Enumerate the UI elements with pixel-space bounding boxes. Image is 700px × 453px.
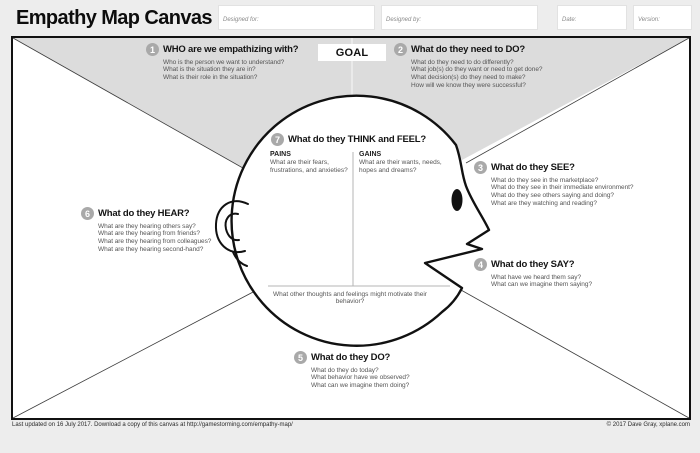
section-hear: 6 What do they HEAR? What are they heari… (81, 207, 211, 254)
section-title: What do they SEE? (491, 162, 575, 173)
question-line: What are they hearing from friends? (98, 230, 211, 238)
date-label: Date: (562, 17, 576, 23)
section-title: What do they HEAR? (98, 208, 189, 219)
question-line: How will we know they were successful? (411, 82, 542, 90)
question-line: Who is the person we want to understand? (163, 59, 298, 67)
question-line: What do they need to do differently? (411, 59, 542, 67)
pains-label: PAINS (270, 151, 348, 158)
section-title: What do they THINK and FEEL? (288, 134, 426, 145)
question-line: What do they do today? (311, 367, 410, 375)
question-line: What is their role in the situation? (163, 74, 298, 82)
version-label: Version: (638, 17, 660, 23)
designed-by-field[interactable]: Designed by: (381, 5, 538, 30)
date-field[interactable]: Date: (557, 5, 627, 30)
page-title: Empathy Map Canvas (16, 7, 212, 30)
gains-column: GAINS What are their wants, needs, hopes… (359, 151, 445, 175)
question-line: What is the situation they are in? (163, 66, 298, 74)
section-number-badge: 6 (81, 207, 94, 220)
section-title: WHO are we empathizing with? (163, 44, 298, 55)
question-line: What decision(s) do they need to make? (411, 74, 542, 82)
section-who: 1 WHO are we empathizing with? Who is th… (146, 43, 298, 82)
question-line: What have we heard them say? (491, 274, 592, 282)
designed-for-field[interactable]: Designed for: (218, 5, 375, 30)
question-line: What do they see in the marketplace? (491, 177, 633, 185)
question-line: What do they see others saying and doing… (491, 192, 633, 200)
section-title: What do they SAY? (491, 259, 574, 270)
eye-icon (452, 189, 463, 211)
question-line: What can we imagine them saying? (491, 281, 592, 289)
pains-text: What are their fears, frustrations, and … (270, 159, 348, 175)
section-number-badge: 3 (474, 161, 487, 174)
section-title: What do they need to DO? (411, 44, 525, 55)
footer-left-text: Last updated on 16 July 2017. Download a… (12, 422, 293, 428)
gains-label: GAINS (359, 151, 445, 158)
question-line: What are they watching and reading? (491, 200, 633, 208)
section-title: What do they DO? (311, 352, 390, 363)
designed-for-label: Designed for: (223, 17, 259, 23)
question-line: What do they see in their immediate envi… (491, 184, 633, 192)
empathy-map-page: Empathy Map Canvas Designed for: Designe… (0, 0, 700, 453)
question-line: What behavior have we observed? (311, 374, 410, 382)
section-number-badge: 1 (146, 43, 159, 56)
question-line: What are they hearing second-hand? (98, 246, 211, 254)
section-see: 3 What do they SEE? What do they see in … (474, 161, 633, 208)
section-number-badge: 2 (394, 43, 407, 56)
section-number-badge: 4 (474, 258, 487, 271)
gains-text: What are their wants, needs, hopes and d… (359, 159, 445, 175)
section-number-badge: 5 (294, 351, 307, 364)
version-field[interactable]: Version: (633, 5, 692, 30)
section-need-to-do: 2 What do they need to DO? What do they … (394, 43, 542, 90)
question-line: What are they hearing others say? (98, 223, 211, 231)
pains-column: PAINS What are their fears, frustrations… (270, 151, 348, 175)
section-think-feel: 7 What do they THINK and FEEL? (271, 133, 426, 146)
section-do: 5 What do they DO? What do they do today… (294, 351, 410, 390)
goal-label: GOAL (318, 44, 386, 61)
designed-by-label: Designed by: (386, 17, 421, 23)
section-number-badge: 7 (271, 133, 284, 146)
section-say: 4 What do they SAY? What have we heard t… (474, 258, 592, 289)
footer-right-text: © 2017 Dave Gray, xplane.com (607, 422, 690, 428)
question-line: What job(s) do they want or need to get … (411, 66, 542, 74)
motivation-question: What other thoughts and feelings might m… (262, 291, 438, 305)
question-line: What are they hearing from colleagues? (98, 238, 211, 246)
question-line: What can we imagine them doing? (311, 382, 410, 390)
